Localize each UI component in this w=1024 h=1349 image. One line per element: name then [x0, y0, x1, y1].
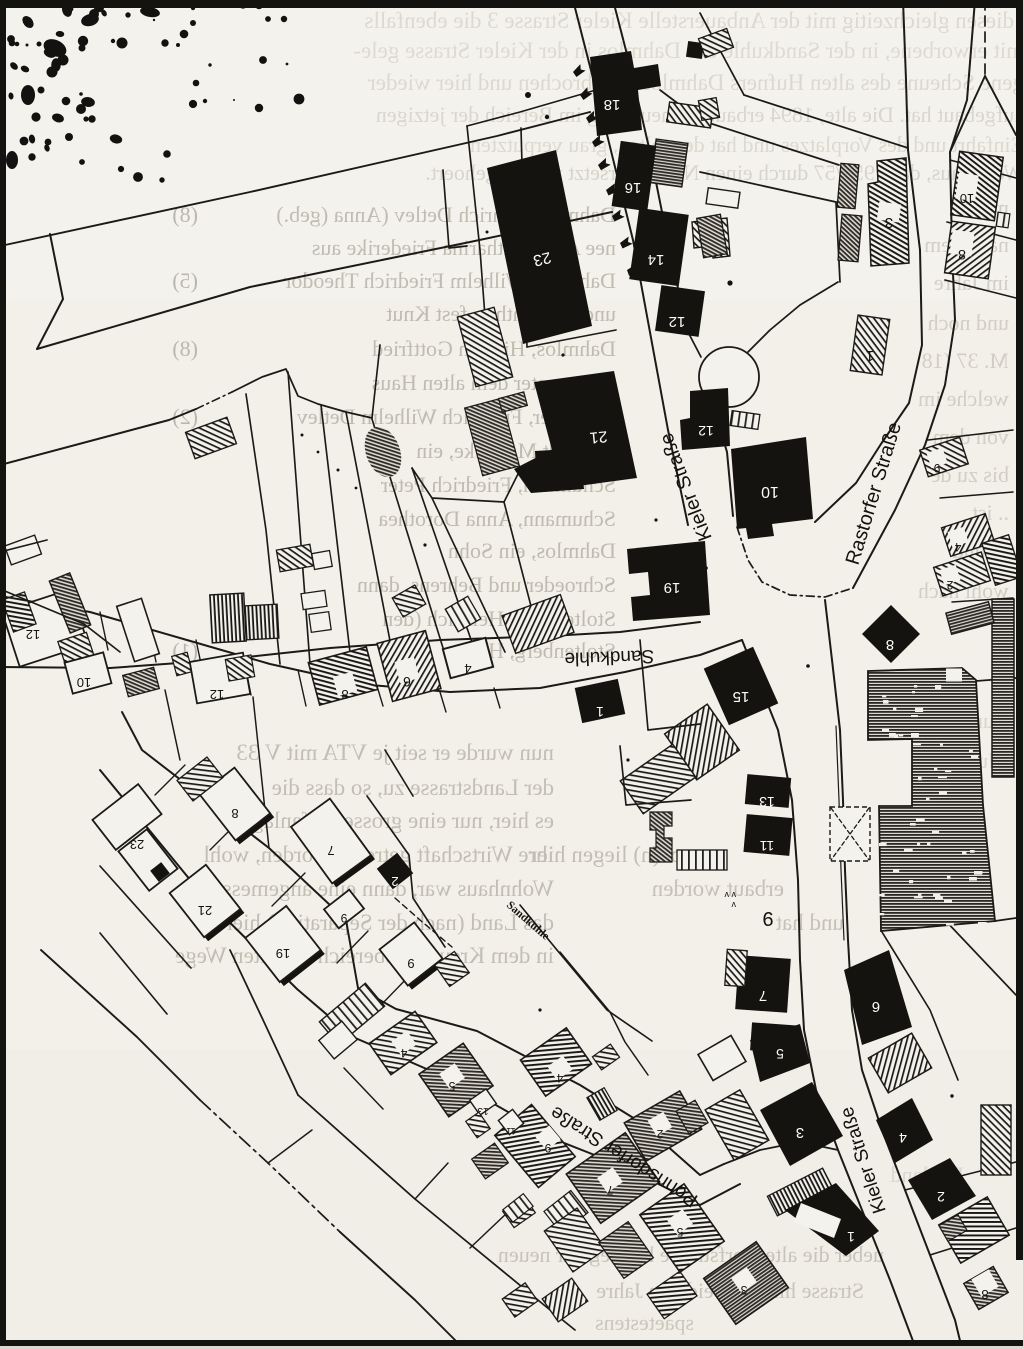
svg-text:6: 6	[403, 674, 411, 690]
svg-text:erbaut worden: erbaut worden	[651, 876, 784, 901]
svg-text:8: 8	[231, 806, 238, 821]
svg-text:8: 8	[981, 1287, 988, 1302]
svg-text:Schroeder und Behrens, dann: Schroeder und Behrens, dann	[357, 572, 616, 597]
svg-text:23: 23	[130, 837, 144, 852]
svg-text:v v: v v	[724, 890, 736, 900]
svg-text:10: 10	[77, 675, 91, 690]
svg-text:4: 4	[400, 1046, 407, 1060]
svg-text:6: 6	[872, 998, 880, 1015]
svg-text:10: 10	[761, 483, 779, 500]
svg-text:5: 5	[448, 1079, 455, 1093]
svg-text:9: 9	[933, 461, 940, 475]
svg-text:welche im: welche im	[918, 386, 1009, 411]
svg-text:(8): (8)	[172, 336, 198, 361]
svg-text:11: 11	[506, 1126, 515, 1136]
svg-text:3: 3	[796, 1124, 804, 1141]
svg-text:10: 10	[960, 191, 974, 206]
svg-text:M. 37 (18: M. 37 (18	[922, 348, 1009, 373]
svg-text:8: 8	[341, 687, 348, 702]
svg-text:1: 1	[847, 1229, 855, 1245]
svg-text:15: 15	[733, 688, 750, 705]
svg-text:3: 3	[885, 214, 893, 231]
svg-text:8: 8	[886, 636, 894, 653]
svg-text:und noch: und noch	[928, 310, 1009, 335]
svg-text:4: 4	[464, 661, 471, 676]
svg-text:nun wurde er seit je VTA mit V: nun wurde er seit je VTA mit V 33	[236, 740, 554, 765]
svg-text:9: 9	[340, 911, 347, 925]
svg-text:2: 2	[946, 578, 953, 592]
svg-text:Stoltenberg, Heinrich (den: Stoltenberg, Heinrich (den	[382, 606, 616, 631]
svg-text:18: 18	[604, 96, 621, 113]
svg-text:7: 7	[606, 1183, 613, 1197]
svg-text:Sandkuhle: Sandkuhle	[564, 645, 654, 669]
svg-text:11: 11	[760, 838, 775, 854]
svg-text:21: 21	[589, 427, 609, 446]
svg-text:(5): (5)	[172, 268, 198, 293]
svg-text:12: 12	[698, 423, 714, 439]
svg-text:21: 21	[198, 903, 212, 918]
svg-text:7: 7	[759, 987, 767, 1004]
svg-text:13: 13	[759, 794, 775, 810]
svg-text:7: 7	[327, 843, 334, 858]
svg-text:5: 5	[776, 1046, 784, 1062]
svg-text:9: 9	[762, 907, 773, 929]
svg-text:das Land (nach der Separation): das Land (nach der Separation) hier zu	[197, 910, 554, 935]
svg-text:16: 16	[625, 179, 642, 196]
svg-text:v: v	[731, 900, 736, 910]
svg-text:spaetestens: spaetestens	[595, 1310, 694, 1335]
svg-text:2: 2	[937, 1189, 945, 1205]
svg-text:9: 9	[544, 1141, 551, 1155]
svg-text:2: 2	[656, 1127, 663, 1141]
svg-text:4: 4	[899, 1130, 907, 1146]
svg-text:12: 12	[26, 627, 40, 642]
svg-text:3: 3	[740, 1283, 747, 1297]
svg-text:diesen gleichzeitig mit der An: diesen gleichzeitig mit der Anbauerstell…	[364, 8, 1014, 33]
svg-text:19: 19	[664, 579, 681, 596]
svg-text:Schumann, Anna Dorothea: Schumann, Anna Dorothea	[378, 506, 616, 531]
svg-text:5: 5	[676, 1225, 683, 1239]
svg-text:8: 8	[958, 247, 966, 263]
svg-text:14: 14	[648, 251, 665, 268]
svg-text:2: 2	[391, 874, 398, 889]
svg-text:12: 12	[210, 687, 224, 702]
svg-text:Wohnhaus war, dann eine angeme: Wohnhaus war, dann eine angemessene	[191, 876, 554, 901]
svg-text:Dahmlos, ein Sohn: Dahmlos, ein Sohn	[448, 538, 616, 563]
svg-text:12: 12	[669, 313, 686, 330]
svg-text:19: 19	[276, 946, 290, 961]
svg-text:9: 9	[407, 956, 414, 971]
svg-text:gene Scheune des alten Hufners: gene Scheune des alten Hufners Dahmlos a…	[368, 70, 1024, 95]
svg-text:1: 1	[866, 347, 874, 364]
svg-text:es hier, nur eine grosse Hofan: es hier, nur eine grosse Hofanlage	[242, 808, 554, 833]
svg-text:1: 1	[596, 704, 604, 720]
svg-text:ihre Wirtschaft getrennt worde: ihre Wirtschaft getrennt worden, wohl	[203, 842, 554, 867]
svg-text:4: 4	[556, 1071, 563, 1085]
svg-text:und hat: und hat	[775, 910, 844, 935]
svg-text:4: 4	[954, 540, 961, 554]
